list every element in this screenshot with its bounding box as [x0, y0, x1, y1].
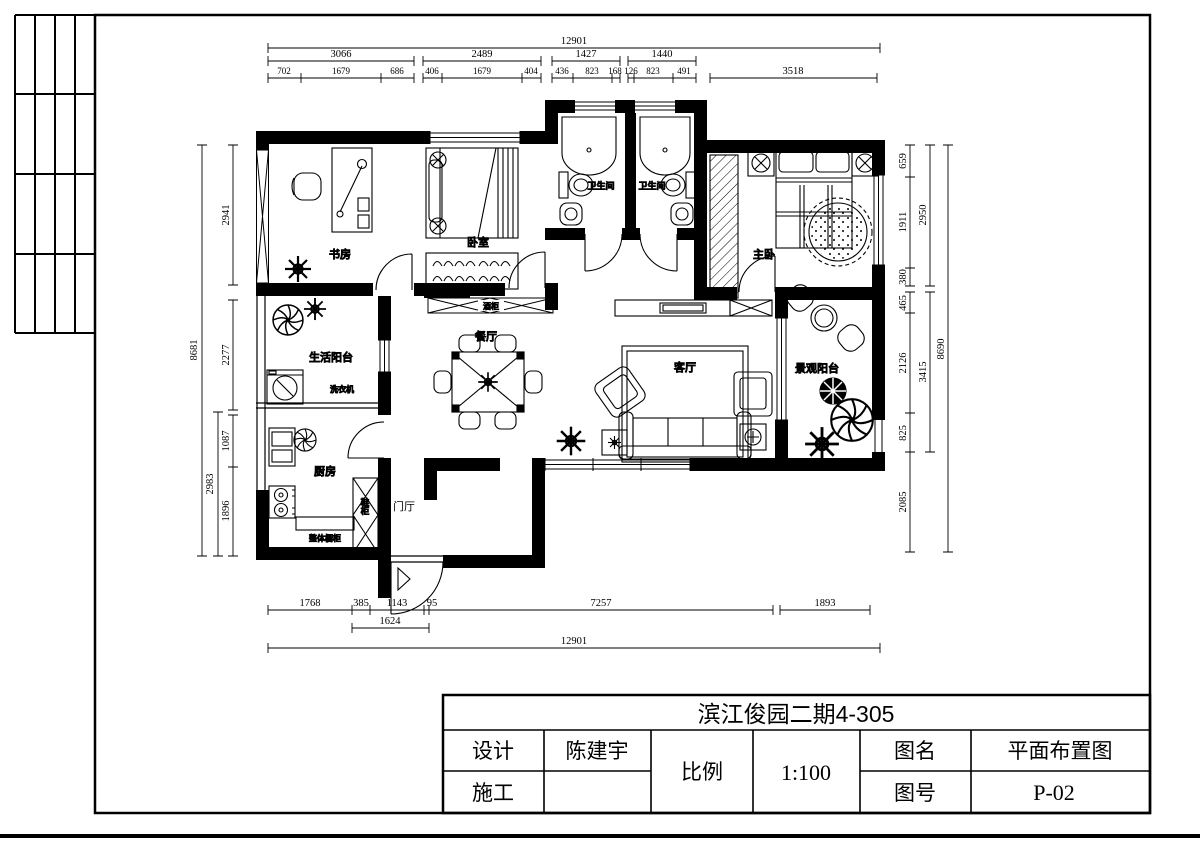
- washer-label: 洗衣机: [330, 384, 354, 394]
- dim: 465: [898, 295, 909, 311]
- dim: 8690: [936, 339, 947, 360]
- shower: [562, 117, 616, 175]
- bath-right-door: [640, 234, 677, 271]
- dim: 2950: [918, 205, 929, 226]
- washing-machine: [267, 370, 303, 404]
- dimension-top-text: 12901 3066 2489 1427 1440 3518 702 1679 …: [277, 36, 803, 77]
- room-dining: 餐厅: [434, 329, 585, 455]
- dim: 1143: [387, 598, 408, 609]
- shoe-cabinet: [353, 478, 378, 553]
- dim: 491: [677, 66, 691, 76]
- plant-icon: [294, 429, 316, 451]
- hatched-cabinet: [730, 300, 772, 316]
- master-label: 主卧: [753, 248, 775, 261]
- dim: 2941: [221, 205, 232, 226]
- master-door: [739, 256, 775, 292]
- kitchen-cabinet-label: 整体橱柜: [309, 533, 341, 543]
- drawing-no-value: P-02: [1033, 780, 1075, 805]
- balcony-chair: [834, 321, 868, 355]
- room-bedroom: 卧室: [426, 148, 518, 289]
- dim: 380: [898, 269, 909, 285]
- tv-cabinet: [615, 300, 730, 316]
- chair: [525, 371, 542, 393]
- chair: [459, 412, 480, 429]
- master-east-window: [872, 175, 885, 265]
- room-view-balcony: 景观阳台: [783, 281, 873, 461]
- dim: 1768: [300, 598, 321, 609]
- south-window: [545, 458, 690, 471]
- dim: 8681: [189, 340, 200, 361]
- toilet: [661, 172, 695, 198]
- chair: [434, 371, 451, 393]
- kitchen-door: [348, 422, 384, 458]
- view-balcony-label: 景观阳台: [795, 361, 839, 375]
- dim: 1624: [380, 616, 402, 627]
- dim: 404: [524, 66, 538, 76]
- dim: 702: [277, 66, 291, 76]
- bath-left-label: 卫生间: [587, 180, 614, 191]
- wardrobe: [710, 155, 738, 298]
- room-bath-right: 卫生间: [638, 117, 695, 225]
- dim: 823: [585, 66, 599, 76]
- dim: 1440: [652, 49, 673, 60]
- armchair: [734, 372, 772, 416]
- bath-right-label: 卫生间: [638, 180, 665, 191]
- drawing-sheet: 书房 卧室 卫生间 卫生间: [0, 0, 1200, 855]
- bedroom-label: 卧室: [467, 235, 489, 249]
- entry-marker: [398, 568, 410, 590]
- dimension-right-text: 659 1911 380 465 2126 825 2085 2950 3415…: [898, 153, 947, 512]
- bath-left-door: [585, 234, 622, 271]
- room-bath-left: 卫生间: [559, 117, 616, 225]
- stove: [269, 486, 295, 518]
- project-title: 滨江俊园二期4-305: [698, 701, 895, 727]
- balcony-door-window: [775, 318, 788, 420]
- drawing-no-label: 图号: [894, 782, 936, 805]
- dim: 686: [390, 66, 404, 76]
- design-label: 设计: [472, 740, 514, 763]
- desk-chair: [292, 173, 321, 200]
- bedside-stool: [430, 218, 446, 234]
- construction-label: 施工: [472, 782, 514, 805]
- dim: 3518: [783, 66, 804, 77]
- foyer-label: 门厅: [393, 499, 415, 513]
- designer-name: 陈建宇: [566, 740, 629, 763]
- dim: 1427: [576, 49, 597, 60]
- dining-label: 餐厅: [475, 329, 497, 343]
- chair: [495, 412, 516, 429]
- study-label: 书房: [329, 248, 351, 261]
- shower: [640, 117, 690, 175]
- dim: 385: [353, 598, 369, 609]
- wine-cabinet: 酒柜: [428, 298, 553, 313]
- dimension-top: [268, 43, 880, 83]
- room-study: 书房: [285, 148, 372, 282]
- service-balcony-label: 生活阳台: [309, 350, 353, 364]
- balcony-east-window: [875, 420, 882, 452]
- armchair: [592, 364, 648, 420]
- sofa: [619, 412, 751, 459]
- drawing-name-value: 平面布置图: [1008, 740, 1113, 763]
- dim: 825: [898, 425, 909, 441]
- bath-window-1: [575, 102, 615, 110]
- bedroom-window: [430, 131, 520, 144]
- side-table: [602, 430, 627, 455]
- plant-dark: [820, 378, 846, 404]
- sink: [560, 203, 582, 225]
- walls: [256, 100, 885, 598]
- dim: 1679: [473, 66, 492, 76]
- room-master: 主卧: [710, 148, 878, 298]
- dining-table: [452, 352, 524, 412]
- title-block: 滨江俊园二期4-305 设计 陈建宇 施工 比例 1:100 图名 平面布置图 …: [443, 695, 1150, 813]
- dim: 2489: [472, 49, 493, 60]
- wine-cabinet-label: 酒柜: [483, 301, 499, 311]
- sheet-frame: [0, 15, 1200, 836]
- dim: 168: [608, 66, 622, 76]
- room-foyer: 门厅: [393, 499, 415, 513]
- floor-plan-canvas: 书房 卧室 卫生间 卫生间: [0, 0, 1200, 855]
- dim: 2126: [898, 353, 909, 374]
- shoe-cabinet-label: 鞋柜: [360, 497, 370, 516]
- plant-icon: [304, 298, 326, 320]
- round-rug: [804, 198, 872, 266]
- plant-icon: [557, 427, 586, 456]
- plant-icon: [831, 399, 873, 441]
- dim: 3415: [918, 362, 929, 383]
- nightstand: [748, 150, 774, 176]
- dim: 3066: [331, 49, 352, 60]
- dim: 1679: [332, 66, 351, 76]
- room-service-balcony: 生活阳台 洗衣机: [267, 298, 354, 404]
- dim: 1087: [221, 431, 232, 452]
- service-balcony-window: [378, 340, 391, 372]
- dim: 126: [624, 66, 638, 76]
- dim: 2277: [221, 345, 232, 366]
- kitchen-sink: [269, 428, 295, 466]
- dim: 823: [646, 66, 660, 76]
- dimension-bottom-text: 1768 385 1143 95 7257 1893 1624 12901: [300, 598, 836, 647]
- plant-icon: [805, 427, 839, 461]
- room-living: 客厅: [592, 300, 772, 462]
- room-kitchen: 整体橱柜 鞋柜 厨房: [269, 428, 378, 553]
- thin-walls: [256, 296, 443, 562]
- plant-icon: [285, 256, 311, 282]
- dim: 1911: [898, 212, 909, 233]
- chair: [495, 335, 516, 352]
- scale-value: 1:100: [781, 760, 831, 785]
- sink: [671, 203, 693, 225]
- dim: 436: [555, 66, 569, 76]
- study-west-window: [257, 150, 269, 283]
- bedroom-door: [509, 252, 545, 288]
- study-door: [376, 254, 412, 290]
- desk: [332, 148, 372, 232]
- corner-grid-table: [15, 15, 95, 333]
- counter: [296, 517, 354, 530]
- dimension-left-text: 8681 2983 2941 2277 1087 1896: [189, 205, 232, 522]
- dim: 659: [898, 153, 909, 169]
- kitchen-label: 厨房: [314, 465, 336, 478]
- dim: 2983: [205, 474, 216, 495]
- plant-icon: [273, 305, 303, 335]
- drawing-name-label: 图名: [894, 740, 936, 763]
- dim: 1893: [815, 598, 836, 609]
- dim: 2085: [898, 492, 909, 513]
- dim: 12901: [561, 36, 587, 47]
- living-label: 客厅: [674, 360, 696, 374]
- dim: 12901: [561, 636, 587, 647]
- dim: 1896: [221, 501, 232, 522]
- dim: 7257: [591, 598, 612, 609]
- scale-label: 比例: [681, 761, 723, 784]
- dim: 95: [427, 598, 438, 609]
- dim: 406: [425, 66, 439, 76]
